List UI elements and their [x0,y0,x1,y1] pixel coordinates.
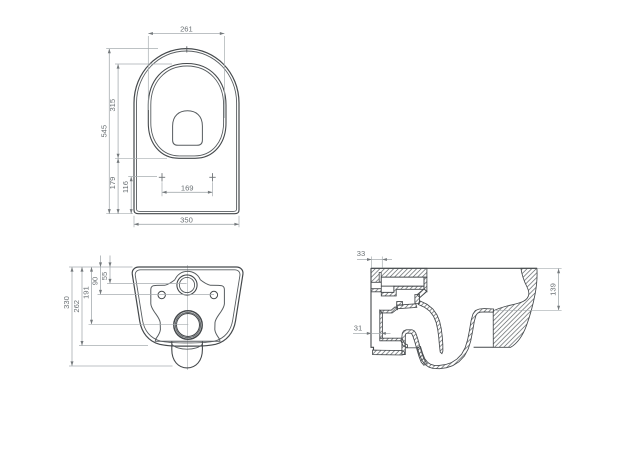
svg-text:315: 315 [108,99,117,112]
svg-text:116: 116 [121,181,130,193]
svg-text:55: 55 [100,272,109,280]
svg-text:261: 261 [180,25,193,34]
svg-text:179: 179 [108,177,117,190]
svg-text:330: 330 [62,296,71,309]
svg-text:90: 90 [91,277,100,285]
svg-text:33: 33 [357,249,365,258]
svg-text:191: 191 [82,286,91,299]
svg-text:350: 350 [180,215,193,224]
svg-text:169: 169 [181,183,194,192]
svg-text:262: 262 [72,300,81,313]
svg-text:545: 545 [99,125,108,138]
svg-text:31: 31 [354,324,362,333]
svg-text:139: 139 [549,283,558,296]
